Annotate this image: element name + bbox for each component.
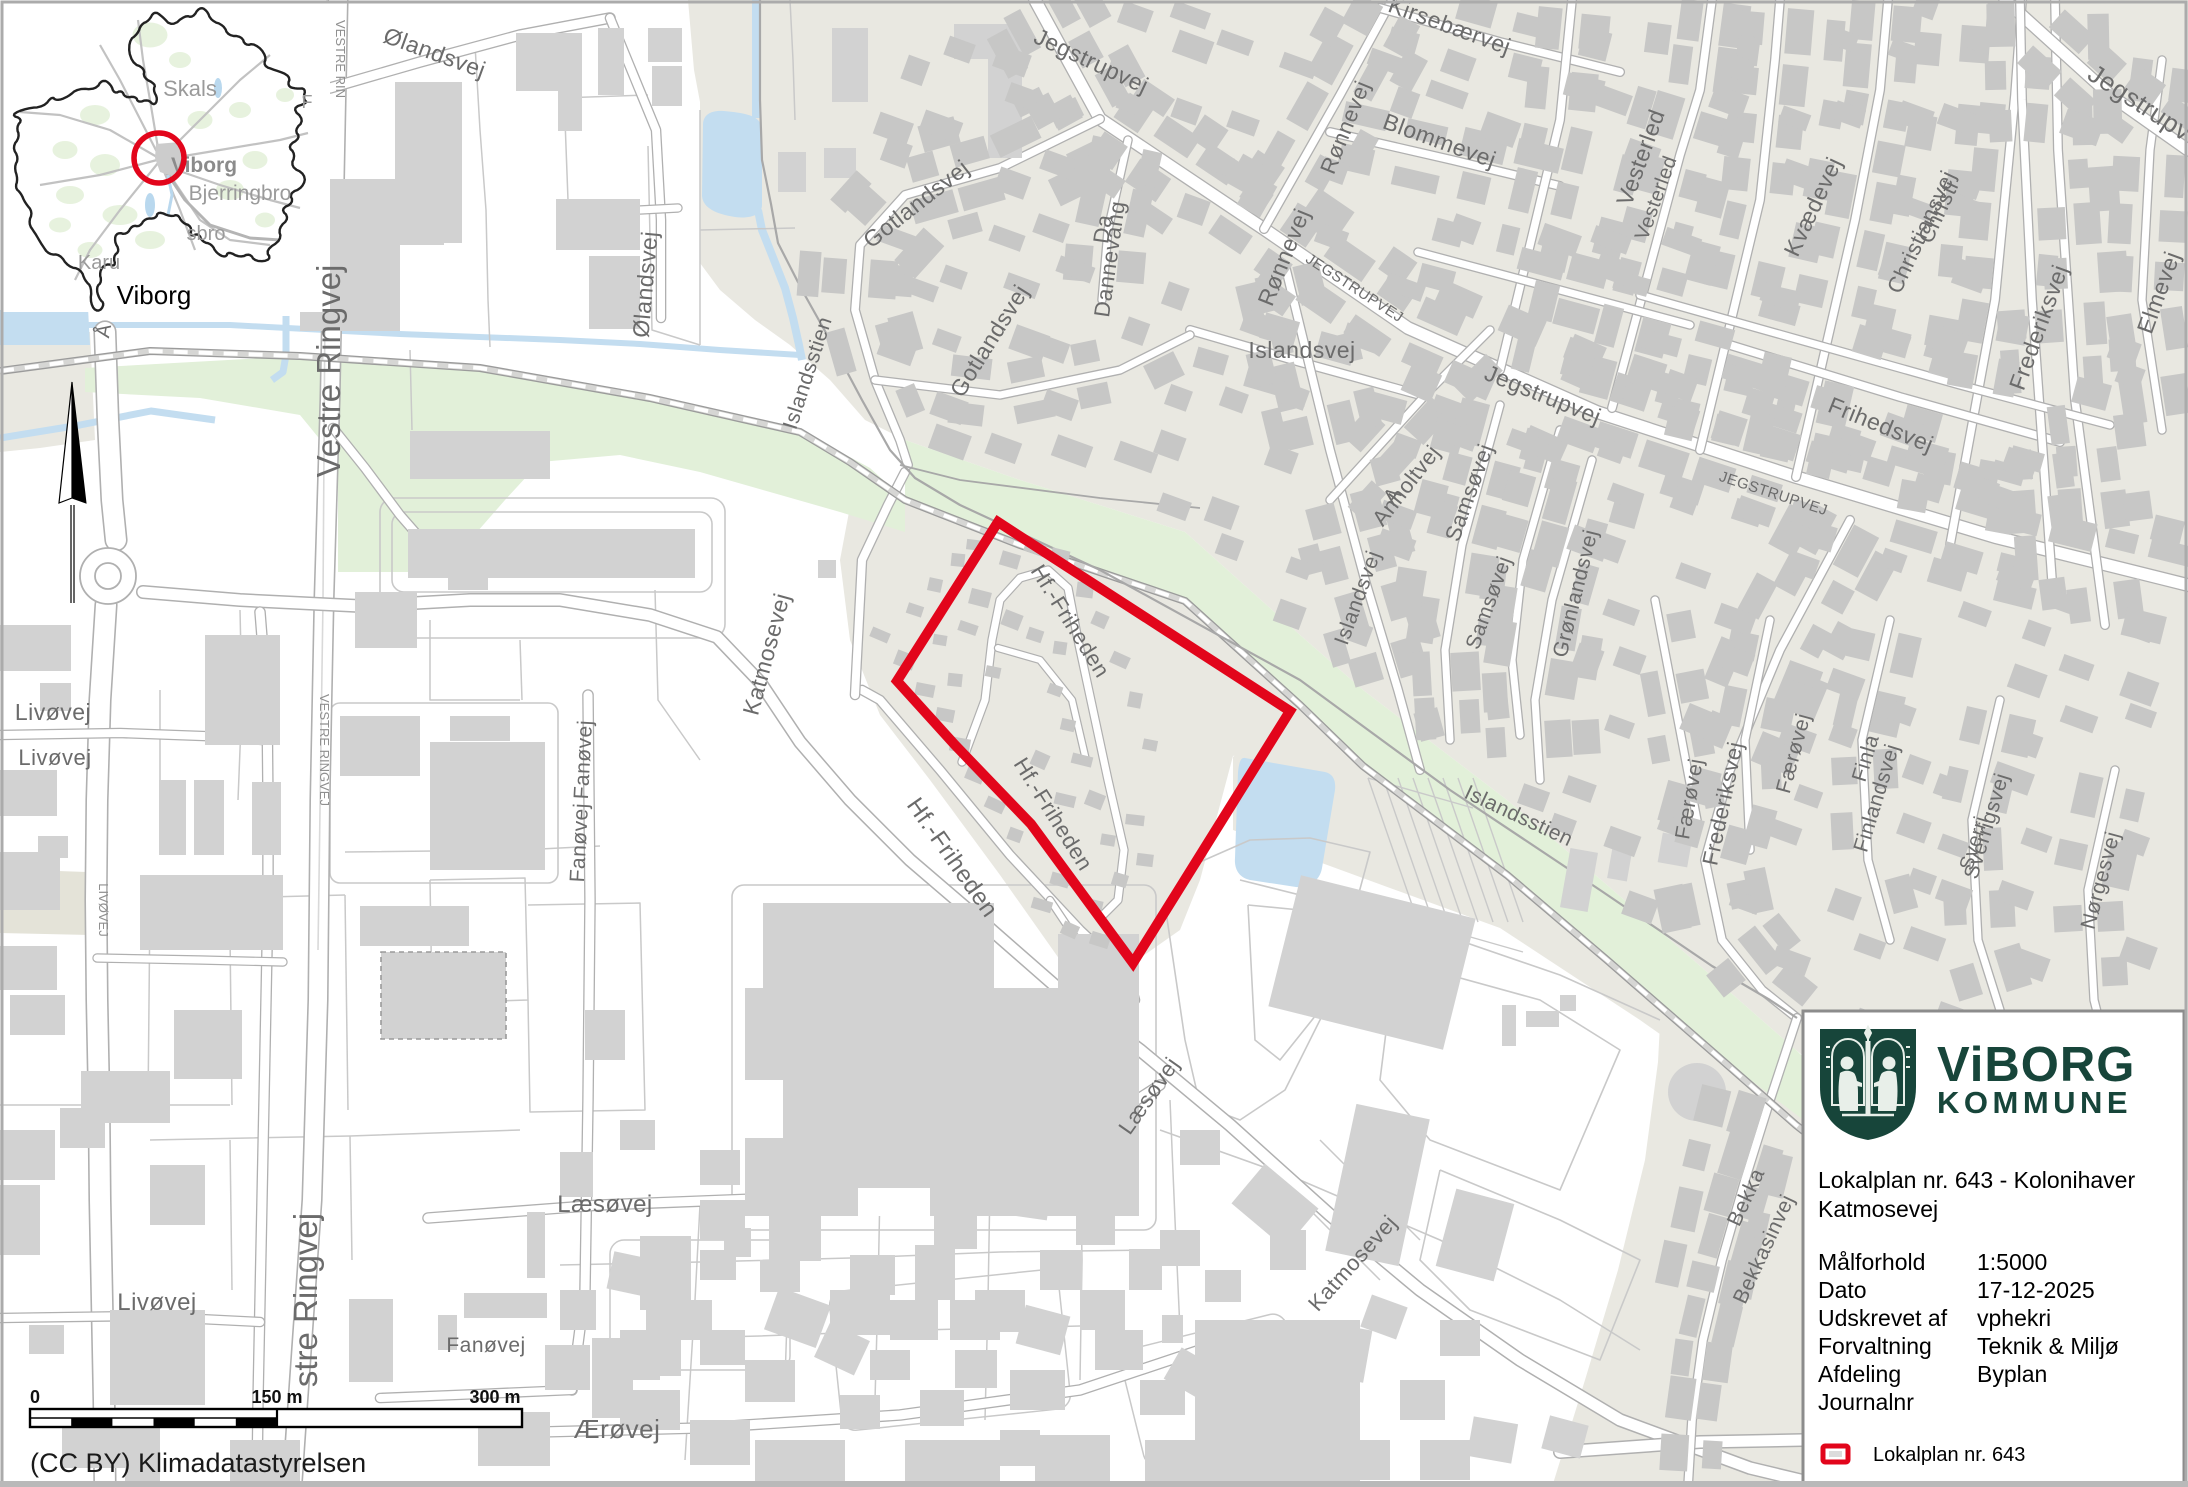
svg-text:0: 0 <box>30 1387 40 1407</box>
svg-text:Fanøvej: Fanøvej <box>570 719 597 799</box>
svg-text:Fanøvej: Fanøvej <box>566 802 593 882</box>
svg-text:150 m: 150 m <box>251 1387 302 1407</box>
svg-text:Dato: Dato <box>1818 1277 1867 1303</box>
svg-text:17-12-2025: 17-12-2025 <box>1977 1277 2095 1303</box>
svg-text:Skals: Skals <box>163 76 217 101</box>
svg-text:1:5000: 1:5000 <box>1977 1249 2047 1275</box>
svg-text:Viborg: Viborg <box>117 280 192 310</box>
svg-text:Livøvej: Livøvej <box>15 699 91 725</box>
svg-text:Islandsvej: Islandsvej <box>1248 337 1355 363</box>
svg-text:VESTRE RINGVEJ: VESTRE RINGVEJ <box>317 694 332 806</box>
svg-text:Bjerringbro: Bjerringbro <box>189 182 292 205</box>
svg-text:VESTRE RIN: VESTRE RIN <box>333 20 348 98</box>
svg-text:Ærøvej: Ærøvej <box>574 1414 661 1444</box>
svg-text:Journalnr: Journalnr <box>1818 1389 1914 1415</box>
svg-text:Lokalplan nr. 643: Lokalplan nr. 643 <box>1873 1444 2025 1466</box>
svg-text:Udskrevet af: Udskrevet af <box>1818 1305 1948 1331</box>
svg-text:ViBORG: ViBORG <box>1937 1038 2135 1092</box>
svg-text:(CC BY) Klimadatastyrelsen: (CC BY) Klimadatastyrelsen <box>30 1448 366 1478</box>
svg-text:Da: Da <box>1088 213 1117 246</box>
svg-text:Livøvej: Livøvej <box>117 1289 197 1316</box>
svg-text:F: F <box>302 92 313 112</box>
svg-text:Byplan: Byplan <box>1977 1361 2047 1387</box>
svg-text:Afdeling: Afdeling <box>1818 1361 1901 1387</box>
svg-text:300 m: 300 m <box>469 1387 520 1407</box>
svg-text:Forvaltning: Forvaltning <box>1818 1333 1932 1359</box>
svg-text:LIVØVEJ: LIVØVEJ <box>96 883 111 936</box>
svg-text:Læsøvej: Læsøvej <box>557 1191 653 1218</box>
svg-text:Karu: Karu <box>78 252 120 274</box>
svg-text:vphekri: vphekri <box>1977 1305 2051 1331</box>
svg-text:Fanøvej: Fanøvej <box>446 1334 525 1357</box>
svg-text:sbro: sbro <box>187 223 226 245</box>
svg-text:Lokalplan nr. 643 - Kolonihave: Lokalplan nr. 643 - Kolonihaver <box>1818 1167 2135 1193</box>
svg-text:Livøvej: Livøvej <box>18 745 91 770</box>
svg-text:Målforhold: Målforhold <box>1818 1249 1925 1275</box>
svg-text:Vestre Ringvej: Vestre Ringvej <box>310 265 347 478</box>
svg-text:stre Ringvej: stre Ringvej <box>287 1213 324 1387</box>
svg-text:Katmosevej: Katmosevej <box>1818 1196 1938 1222</box>
svg-text:Teknik & Miljø: Teknik & Miljø <box>1977 1333 2119 1359</box>
svg-text:KOMMUNE: KOMMUNE <box>1937 1085 2132 1120</box>
